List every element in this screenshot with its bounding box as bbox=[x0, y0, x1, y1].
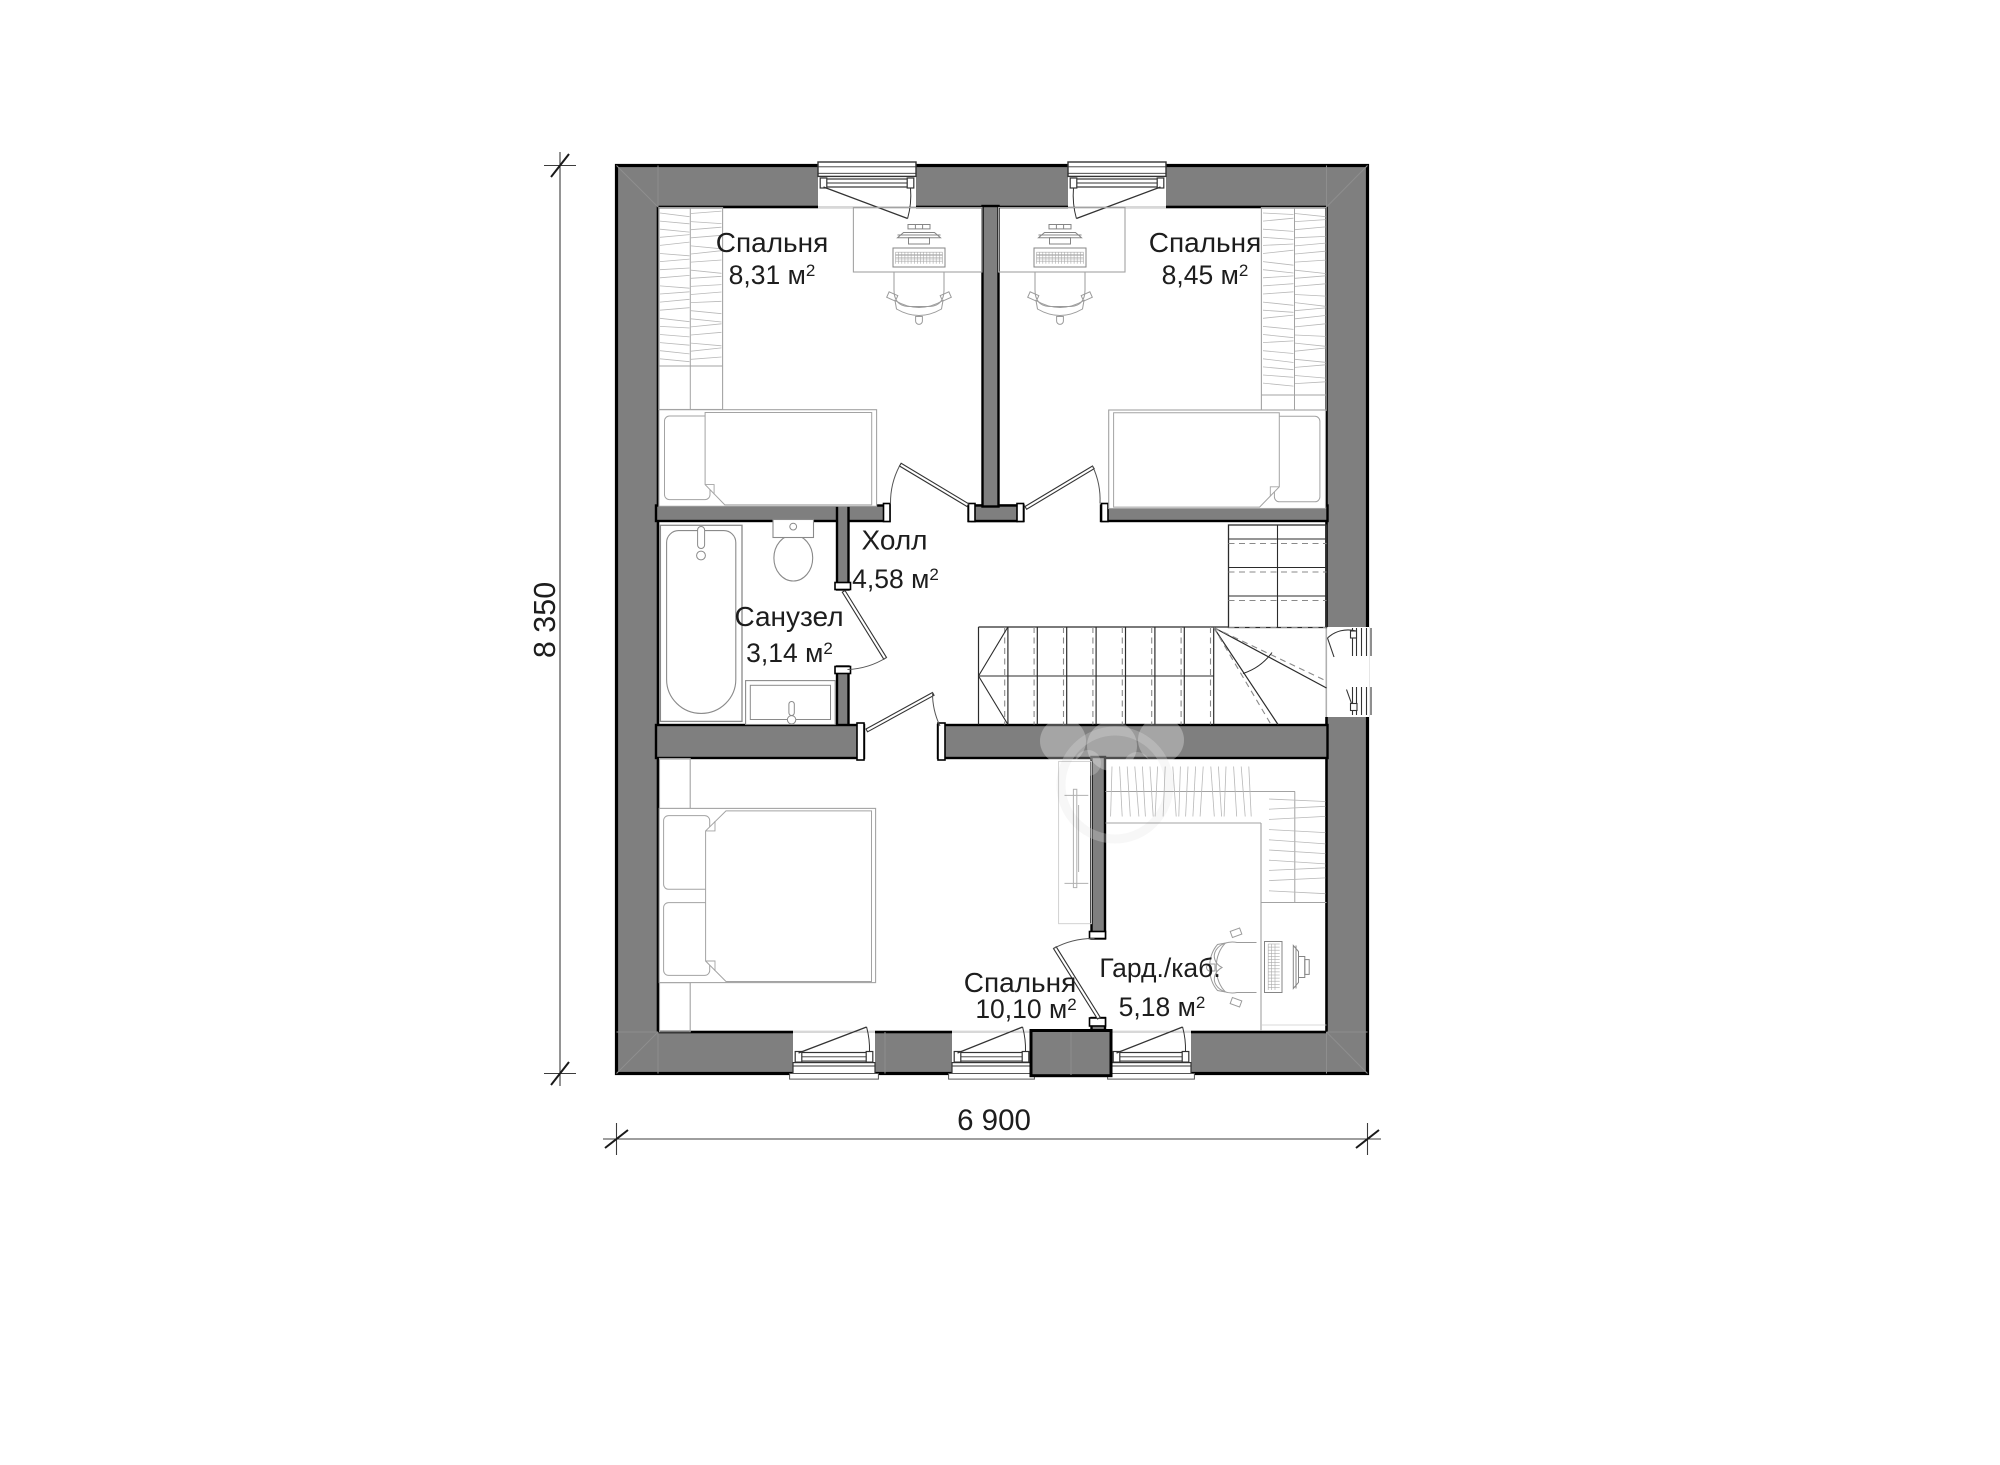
svg-text:Спальня: Спальня bbox=[716, 227, 829, 258]
svg-text:Гард./каб.: Гард./каб. bbox=[1099, 953, 1220, 983]
svg-text:Спальня: Спальня bbox=[1149, 227, 1262, 258]
svg-text:Холл: Холл bbox=[862, 525, 928, 556]
svg-text:4,58 м2: 4,58 м2 bbox=[852, 564, 939, 594]
svg-text:8 350: 8 350 bbox=[528, 582, 562, 658]
svg-text:8,45 м2: 8,45 м2 bbox=[1162, 260, 1249, 290]
svg-text:3,14 м2: 3,14 м2 bbox=[746, 638, 833, 668]
svg-text:6 900: 6 900 bbox=[957, 1104, 1031, 1137]
svg-text:10,10 м2: 10,10 м2 bbox=[975, 994, 1076, 1024]
svg-text:5,18 м2: 5,18 м2 bbox=[1119, 992, 1206, 1022]
svg-text:Санузел: Санузел bbox=[734, 601, 843, 632]
svg-text:8,31 м2: 8,31 м2 bbox=[729, 260, 816, 290]
